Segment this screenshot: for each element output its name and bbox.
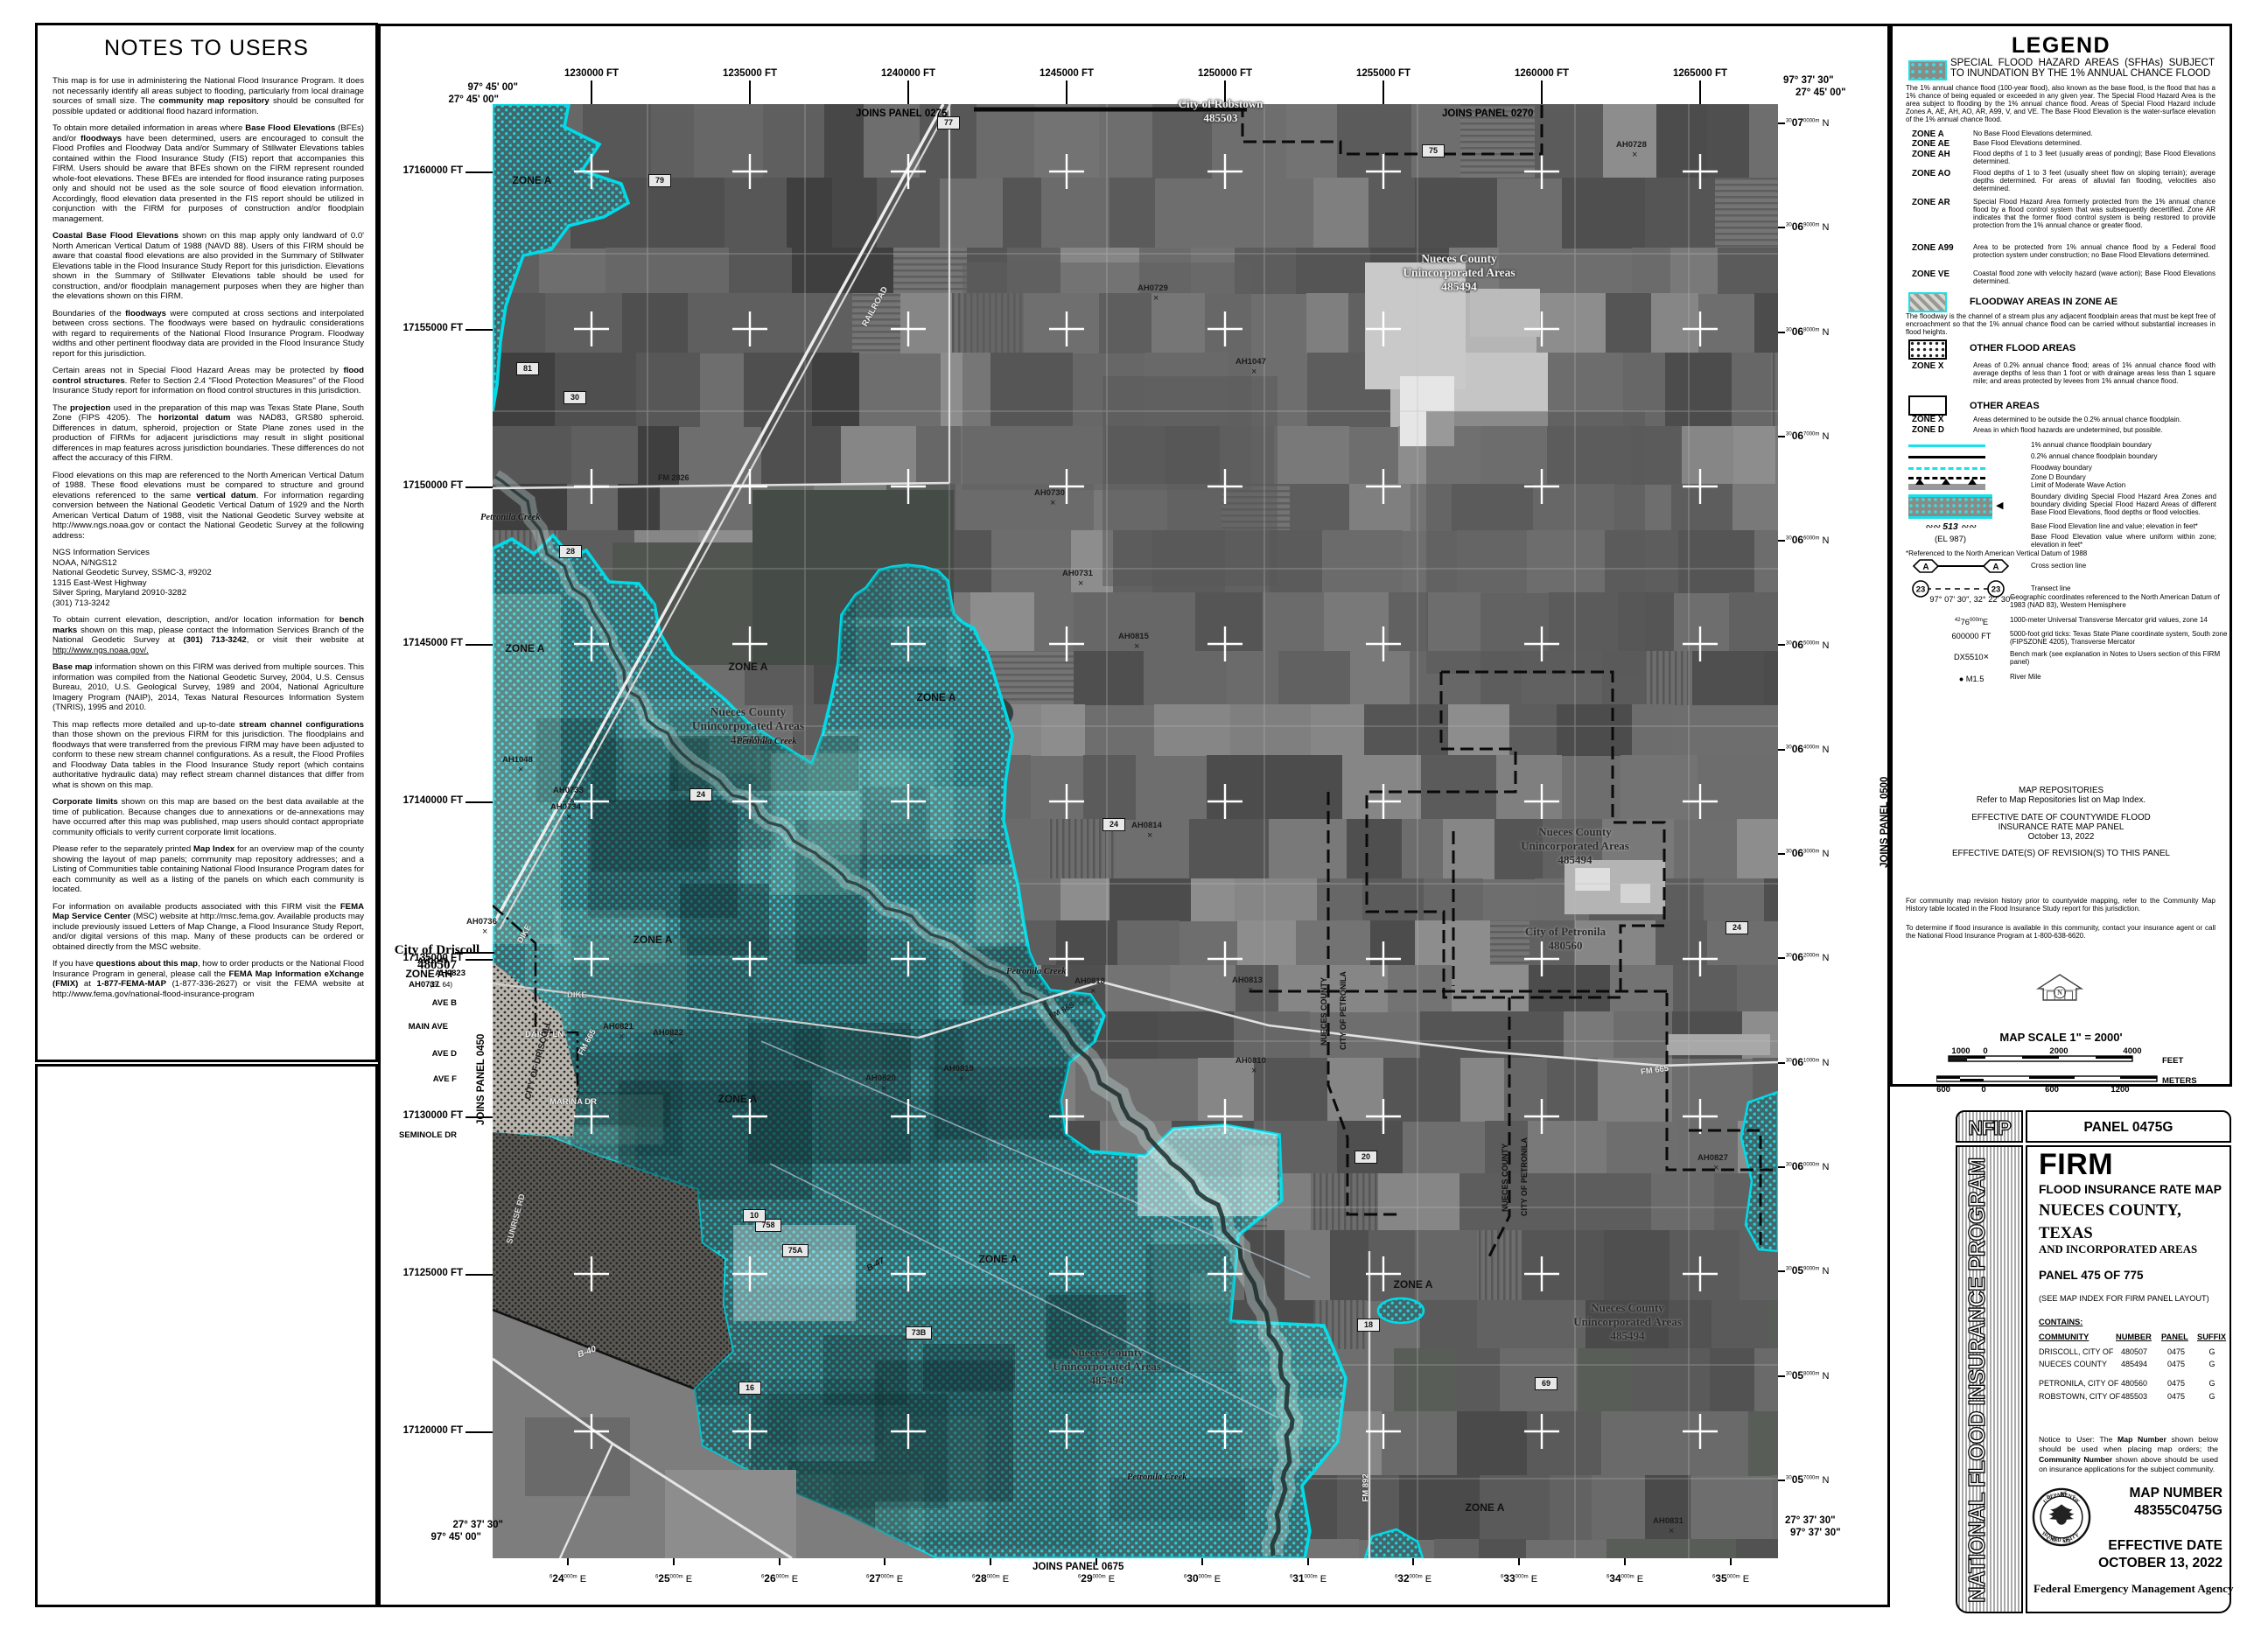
svg-text:600: 600 (1936, 1085, 1950, 1095)
svg-text:1200: 1200 (2110, 1085, 2129, 1095)
svg-text:METERS: METERS (2162, 1076, 2197, 1086)
svg-text:1000: 1000 (1951, 1046, 1970, 1056)
svg-text:4000: 4000 (2123, 1046, 2141, 1056)
svg-text:23: 23 (1916, 585, 1926, 595)
svg-text:A: A (1922, 563, 1928, 572)
svg-text:0: 0 (1981, 1085, 1985, 1095)
svg-text:23: 23 (1991, 585, 2001, 595)
svg-text:0: 0 (1983, 1046, 1987, 1056)
svg-text:2000: 2000 (2049, 1046, 2068, 1056)
svg-text:600: 600 (2045, 1085, 2059, 1095)
svg-text:A: A (1992, 563, 1998, 572)
svg-text:FEET: FEET (2162, 1056, 2183, 1066)
